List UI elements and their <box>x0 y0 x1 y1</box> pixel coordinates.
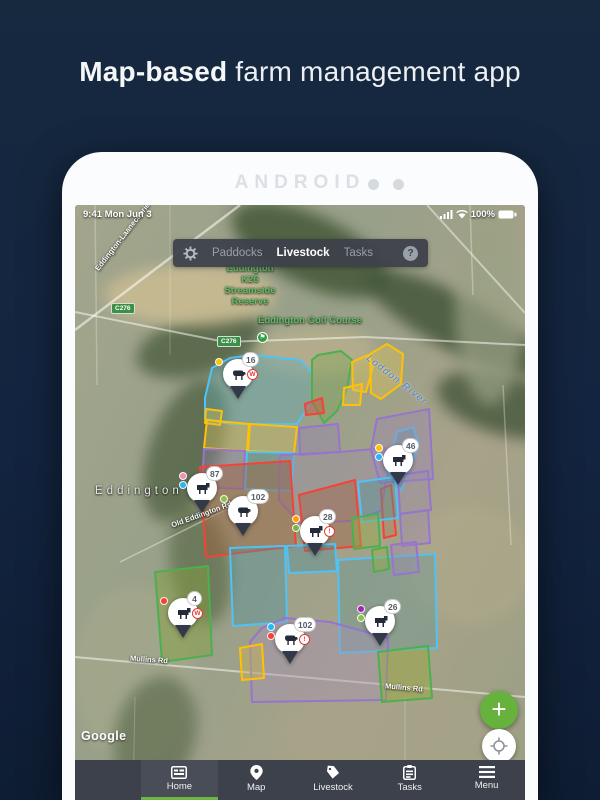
livestock-count-badge: 28 <box>319 509 336 524</box>
home-icon <box>171 766 187 779</box>
alert-badge: W <box>192 608 203 619</box>
tab-livestock[interactable]: Livestock <box>277 247 330 259</box>
livestock-marker[interactable]: 102 <box>226 496 260 536</box>
livestock-marker[interactable]: 28! <box>298 516 332 556</box>
page-title-rest: farm management app <box>227 56 521 87</box>
livestock-marker[interactable]: 4W <box>166 598 200 638</box>
status-dot <box>357 614 365 622</box>
status-dots <box>267 623 275 640</box>
page-title-bold: Map-based <box>79 56 227 87</box>
livestock-count-badge: 26 <box>384 599 401 614</box>
status-dots <box>215 358 223 366</box>
menu-icon <box>479 766 495 778</box>
alert-badge: ! <box>299 634 310 645</box>
pin-tail <box>230 386 246 399</box>
status-dot <box>375 444 383 452</box>
top-nav: Paddocks Livestock Tasks ? <box>173 239 428 267</box>
marker-layer: 16W468710228!4W26102! <box>75 205 525 800</box>
tab-tasks[interactable]: Tasks <box>344 247 373 259</box>
nav-label: Home <box>167 781 192 792</box>
livestock-count-badge: 46 <box>402 438 419 453</box>
page-title: Map-based farm management app <box>0 56 600 88</box>
tab-paddocks[interactable]: Paddocks <box>212 247 263 259</box>
status-dots <box>375 444 383 461</box>
pin-tail <box>372 633 388 646</box>
battery-icon <box>498 210 517 219</box>
livestock-marker[interactable]: 16W <box>221 359 255 399</box>
add-button[interactable]: + <box>480 691 518 729</box>
livestock-count-badge: 87 <box>206 466 223 481</box>
google-attribution: Google <box>81 729 126 743</box>
livestock-count-badge: 102 <box>294 617 316 632</box>
nav-spacer <box>75 760 141 800</box>
nav-label: Livestock <box>313 782 353 793</box>
status-dot <box>267 623 275 631</box>
device-brand-label: ANDROID <box>62 172 538 194</box>
livestock-marker[interactable]: 26 <box>363 606 397 646</box>
nav-item-home[interactable]: Home <box>141 760 218 800</box>
status-dot <box>357 605 365 613</box>
nav-item-map[interactable]: Map <box>218 760 295 800</box>
app-screen: Eddington K26 Streamside Reserve Eddingt… <box>75 205 525 800</box>
tasks-clipboard-icon <box>403 765 416 780</box>
livestock-count-badge: 102 <box>247 489 269 504</box>
livestock-marker[interactable]: 102! <box>273 624 307 664</box>
alert-badge: ! <box>324 526 335 537</box>
livestock-marker[interactable]: 46 <box>381 445 415 485</box>
status-dot <box>160 597 168 605</box>
map-pin-icon <box>250 765 263 780</box>
status-dots <box>160 597 168 605</box>
livestock-count-badge: 16 <box>242 352 259 367</box>
nav-label: Map <box>247 782 265 793</box>
pin-tail <box>307 543 323 556</box>
status-dots <box>357 605 365 622</box>
wifi-icon <box>456 210 468 219</box>
livestock-marker[interactable]: 87 <box>185 473 219 513</box>
pin-tail <box>282 651 298 664</box>
nav-item-tasks[interactable]: Tasks <box>371 760 448 800</box>
pin-tail <box>390 472 406 485</box>
pin-tail <box>175 625 191 638</box>
nav-label: Tasks <box>398 782 422 793</box>
status-dot <box>179 472 187 480</box>
camera-dot-icon <box>368 179 379 190</box>
tablet-mockup: ANDROID Eddington K26 Streamside Reserve <box>62 152 538 800</box>
livestock-tag-icon <box>325 765 340 780</box>
crosshair-icon <box>490 737 508 755</box>
nav-item-menu[interactable]: Menu <box>448 760 525 800</box>
nav-item-livestock[interactable]: Livestock <box>295 760 372 800</box>
livestock-count-badge: 4 <box>187 591 202 606</box>
battery-percent: 100% <box>471 209 495 220</box>
status-dot <box>220 495 228 503</box>
gear-icon[interactable] <box>183 246 198 261</box>
locate-button[interactable] <box>482 729 516 763</box>
nav-label: Menu <box>475 780 499 791</box>
status-dots <box>292 515 300 532</box>
pin-tail <box>194 500 210 513</box>
status-dot <box>267 632 275 640</box>
status-time-date: 9:41 Mon Jun 3 <box>83 209 152 220</box>
pin-tail <box>235 523 251 536</box>
status-dot <box>292 524 300 532</box>
status-bar: 9:41 Mon Jun 3 100% <box>75 205 525 223</box>
status-dot <box>375 453 383 461</box>
status-dot <box>215 358 223 366</box>
signal-icon <box>440 210 453 219</box>
alert-badge: W <box>247 369 258 380</box>
camera-dot-icon <box>393 179 404 190</box>
status-dots <box>220 495 228 503</box>
status-dot <box>292 515 300 523</box>
bottom-nav: Home Map Livestock Tasks Menu <box>75 760 525 800</box>
help-button[interactable]: ? <box>403 246 418 261</box>
status-dot <box>179 481 187 489</box>
status-dots <box>179 472 187 489</box>
